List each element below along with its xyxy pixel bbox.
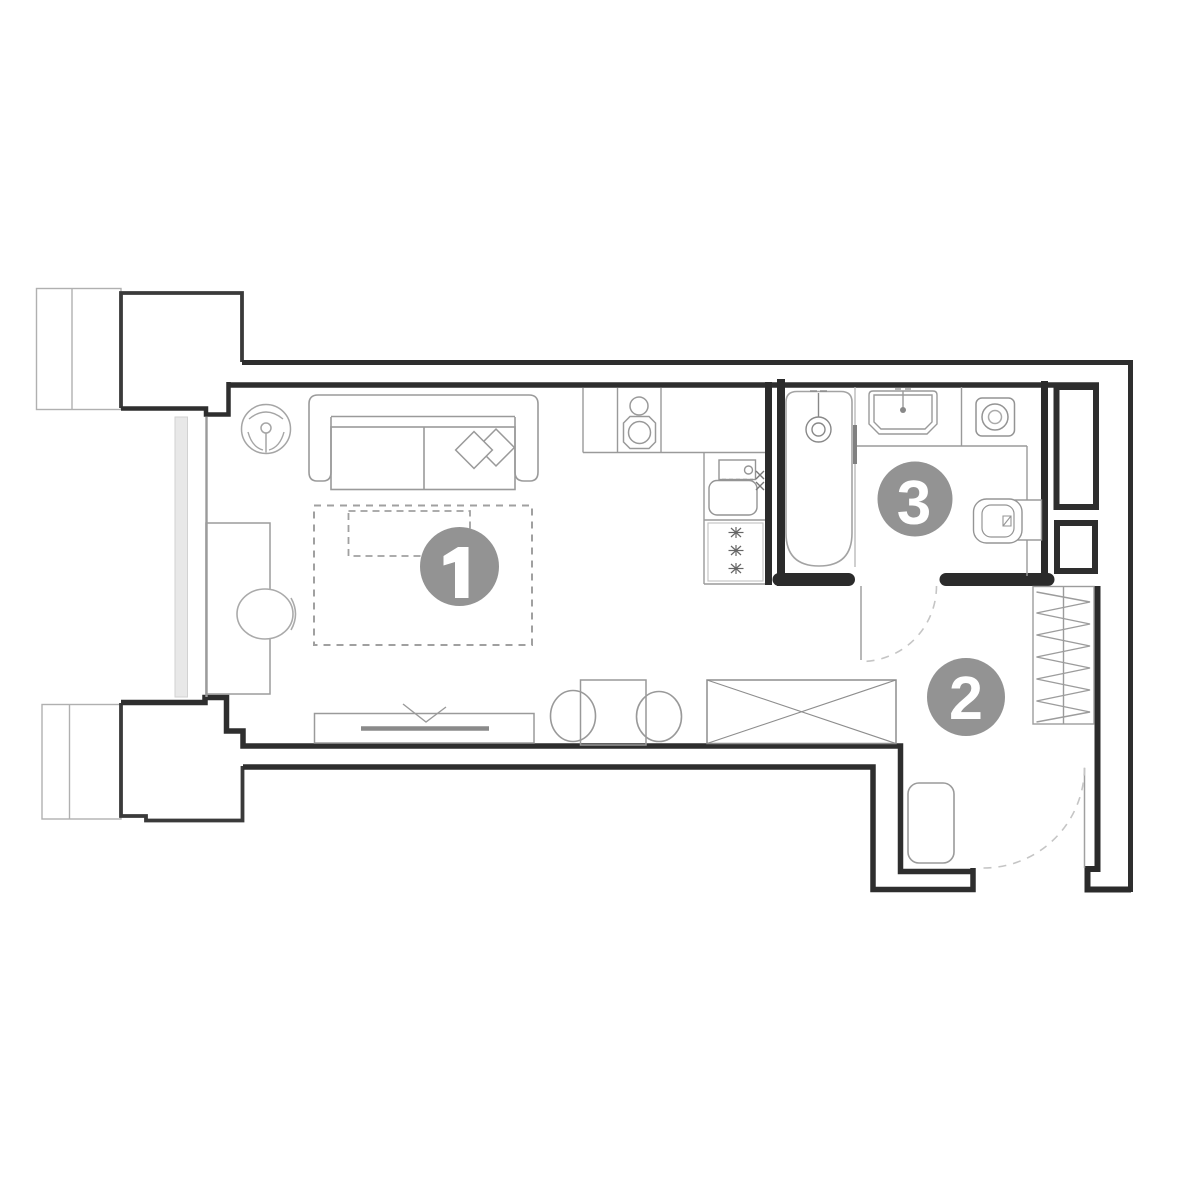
svg-text:3: 3 [897,469,931,538]
svg-text:2: 2 [949,664,983,732]
